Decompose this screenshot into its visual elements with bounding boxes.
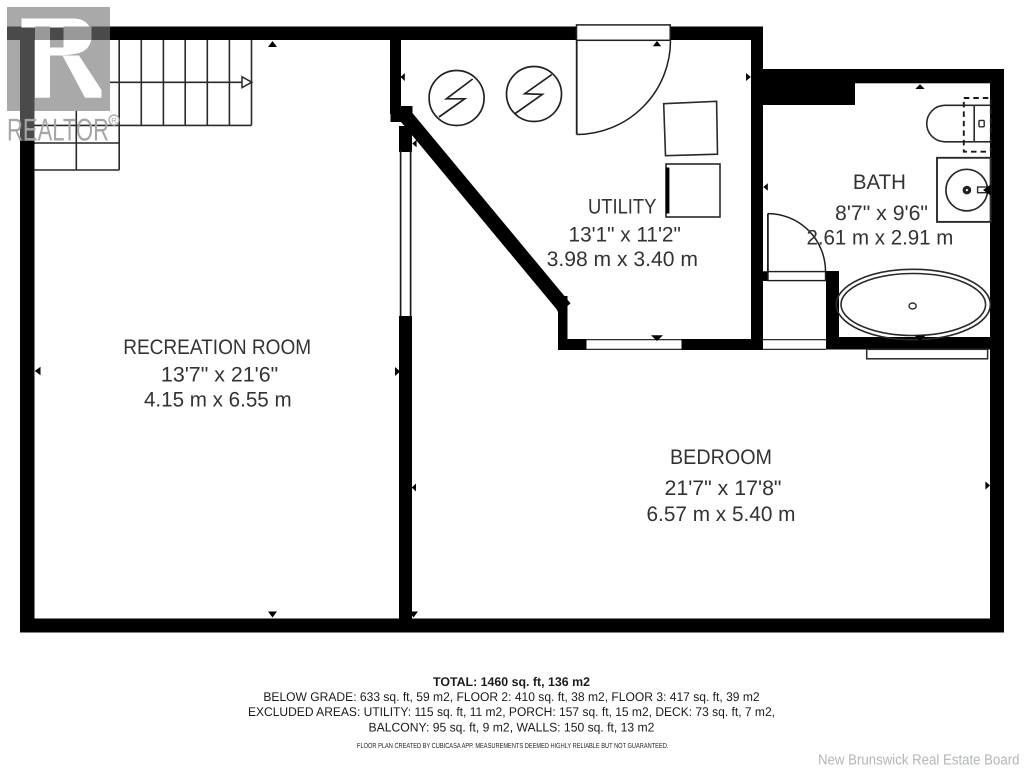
svg-text:BATH: BATH (853, 171, 906, 194)
svg-text:BEDROOM: BEDROOM (670, 446, 772, 469)
svg-text:3.98 m x 3.40 m: 3.98 m x 3.40 m (547, 248, 698, 271)
svg-text:21'7" x 17'8": 21'7" x 17'8" (665, 477, 782, 500)
svg-text:TOTAL: 1460 sq. ft, 136 m2: TOTAL: 1460 sq. ft, 136 m2 (433, 675, 590, 689)
svg-text:EXCLUDED AREAS: UTILITY: 115 s: EXCLUDED AREAS: UTILITY: 115 sq. ft, 11 … (248, 705, 775, 719)
svg-text:R: R (111, 116, 117, 125)
svg-text:8'7" x 9'6": 8'7" x 9'6" (835, 202, 928, 225)
svg-text:13'7" x 21'6": 13'7" x 21'6" (161, 364, 278, 387)
svg-text:2.61 m x 2.91 m: 2.61 m x 2.91 m (806, 227, 953, 250)
svg-text:13'1" x 11'2": 13'1" x 11'2" (569, 224, 681, 247)
svg-text:RECREATION ROOM: RECREATION ROOM (123, 336, 311, 359)
svg-text:REALTOR: REALTOR (7, 112, 109, 148)
svg-text:New Brunswick Real Estate Boar: New Brunswick Real Estate Board (818, 753, 1020, 768)
svg-text:6.57 m x 5.40 m: 6.57 m x 5.40 m (647, 503, 796, 526)
svg-text:FLOOR PLAN CREATED BY CUBICASA: FLOOR PLAN CREATED BY CUBICASA APP. MEAS… (357, 741, 668, 750)
svg-text:BELOW GRADE: 633 sq. ft, 59 m2: BELOW GRADE: 633 sq. ft, 59 m2, FLOOR 2:… (263, 690, 759, 704)
svg-text:BALCONY: 95 sq. ft, 9 m2, WALL: BALCONY: 95 sq. ft, 9 m2, WALLS: 150 sq.… (369, 720, 655, 734)
svg-text:UTILITY: UTILITY (588, 195, 656, 218)
svg-text:4.15 m x 6.55 m: 4.15 m x 6.55 m (144, 388, 292, 411)
